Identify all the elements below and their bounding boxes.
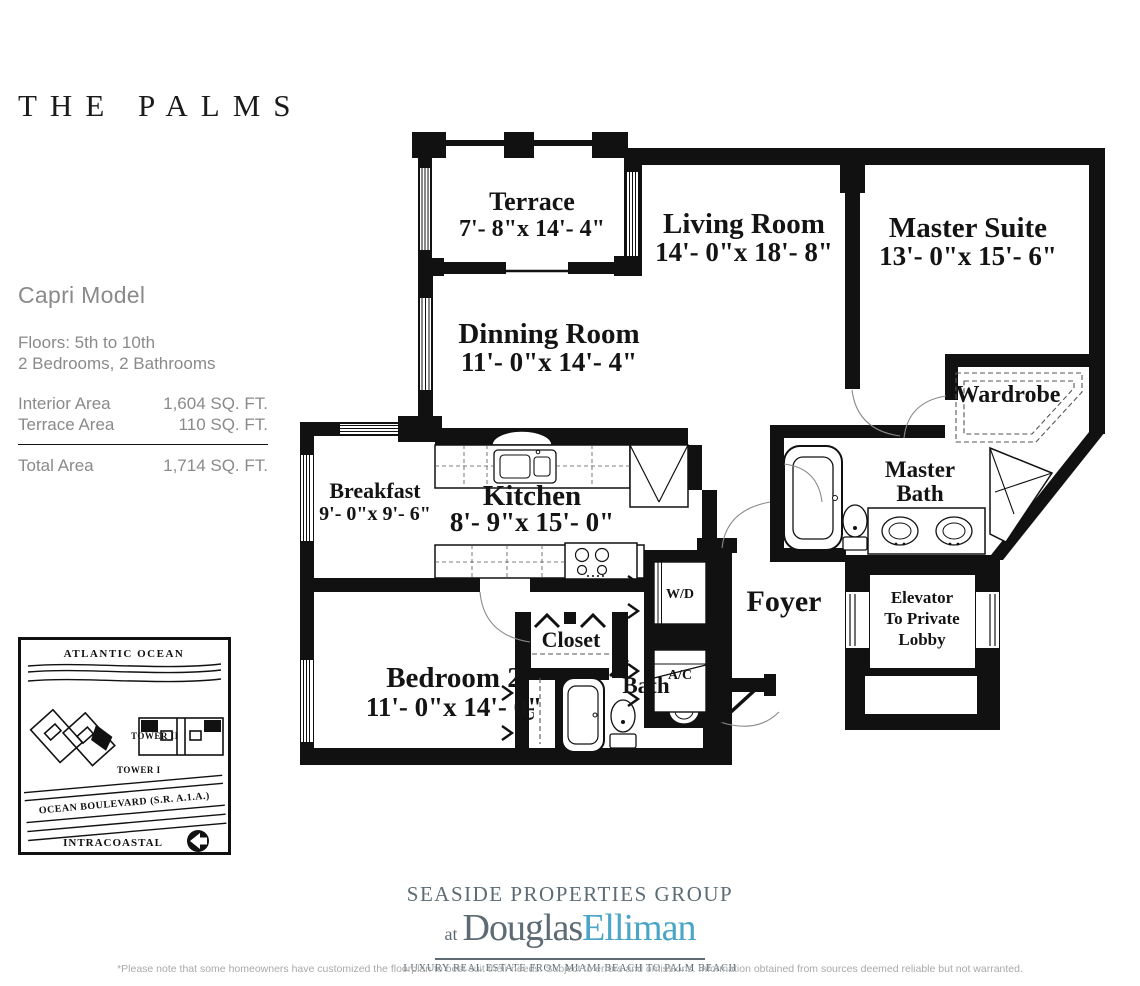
label-ac: A/C: [668, 668, 692, 683]
floorplan: Terrace 7'- 8"x 14'- 4" Living Room 14'-…: [292, 130, 1122, 785]
label-elevator-3: Lobby: [898, 630, 946, 649]
disclaimer-text: *Please note that some homeowners have c…: [0, 963, 1140, 975]
north-arrow-icon: [187, 830, 209, 852]
label-terrace-dims: 7'- 8"x 14'- 4": [459, 216, 605, 242]
label-elevator-1: Elevator: [891, 588, 954, 607]
logo-group-name: SEASIDE PROPERTIES GROUP: [407, 882, 733, 907]
master-bathtub-icon: [784, 446, 842, 550]
area-row-interior: Interior Area 1,604 SQ. FT.: [18, 393, 268, 414]
brokerage-logo: SEASIDE PROPERTIES GROUP atDouglasEllima…: [0, 882, 1140, 974]
area-table: Interior Area 1,604 SQ. FT. Terrace Area…: [18, 393, 268, 476]
shoreline-lines: [28, 664, 221, 682]
label-bedroom2: Bedroom 2: [386, 662, 522, 694]
tower2-footprint: [31, 692, 118, 780]
bed-bath-line: 2 Bedrooms, 2 Bathrooms: [18, 353, 215, 374]
toilet-icon: [610, 700, 636, 748]
label-foyer: Foyer: [747, 585, 822, 618]
model-name: Capri Model: [18, 282, 145, 309]
label-linen: Cl: [522, 707, 537, 720]
label-elevator-2: To Private: [884, 609, 960, 628]
label-dinning: Dinning Room: [458, 318, 639, 350]
bathtub-icon: [562, 678, 604, 752]
label-bath: Bath: [622, 673, 670, 698]
logo-brand-line: atDouglasElliman: [445, 908, 696, 956]
page-title: THE PALMS: [18, 88, 304, 124]
label-wd: W/D: [666, 587, 694, 602]
floors-line: Floors: 5th to 10th: [18, 332, 215, 353]
area-row-terrace: Terrace Area 110 SQ. FT.: [18, 414, 268, 435]
label-dinning-dims: 11'- 0"x 14'- 4": [461, 347, 637, 377]
label-bedroom2-dims: 11'- 0"x 14'- 0": [366, 692, 542, 722]
logo-brand-elliman: Elliman: [582, 907, 695, 949]
label-master-suite: Master Suite: [889, 212, 1047, 244]
label-breakfast-dims: 9'- 0"x 9'- 6": [319, 503, 431, 525]
label-terrace: Terrace: [489, 187, 575, 216]
master-vanity-icon: [868, 508, 985, 554]
area-label: Total Area: [18, 455, 94, 476]
label-master-bath-1: Master: [885, 457, 955, 482]
map-label-road: OCEAN BOULEVARD (S.R. A.1.A.): [38, 791, 210, 817]
area-value: 1,604 SQ. FT.: [163, 393, 268, 414]
label-master-bath-2: Bath: [896, 481, 944, 506]
area-label: Interior Area: [18, 393, 111, 414]
label-kitchen-dims: 8'- 9"x 15'- 0": [450, 507, 614, 537]
master-toilet-icon: [843, 505, 867, 550]
area-value: 110 SQ. FT.: [179, 414, 268, 435]
logo-brand-douglas: Douglas: [463, 907, 583, 949]
label-breakfast: Breakfast: [329, 478, 421, 503]
label-closet: Closet: [542, 627, 601, 652]
map-label-tower1: TOWER I: [117, 765, 161, 775]
logo-divider: [435, 958, 705, 960]
area-row-total: Total Area 1,714 SQ. FT.: [18, 455, 268, 476]
area-label: Terrace Area: [18, 414, 114, 435]
map-label-ocean: ATLANTIC OCEAN: [64, 648, 185, 660]
label-master-suite-dims: 13'- 0"x 15'- 6": [879, 241, 1057, 271]
label-wardrobe: Wardrobe: [956, 382, 1061, 408]
label-living-dims: 14'- 0"x 18'- 8": [655, 237, 833, 267]
area-divider: [18, 444, 268, 445]
site-map: ATLANTIC OCEAN TOWER II TOWER I: [18, 637, 231, 855]
area-value: 1,714 SQ. FT.: [163, 455, 268, 476]
map-label-intracoastal: INTRACOASTAL: [63, 837, 163, 849]
model-details: Floors: 5th to 10th 2 Bedrooms, 2 Bathro…: [18, 332, 215, 374]
logo-at: at: [445, 924, 458, 944]
label-living: Living Room: [663, 208, 825, 240]
